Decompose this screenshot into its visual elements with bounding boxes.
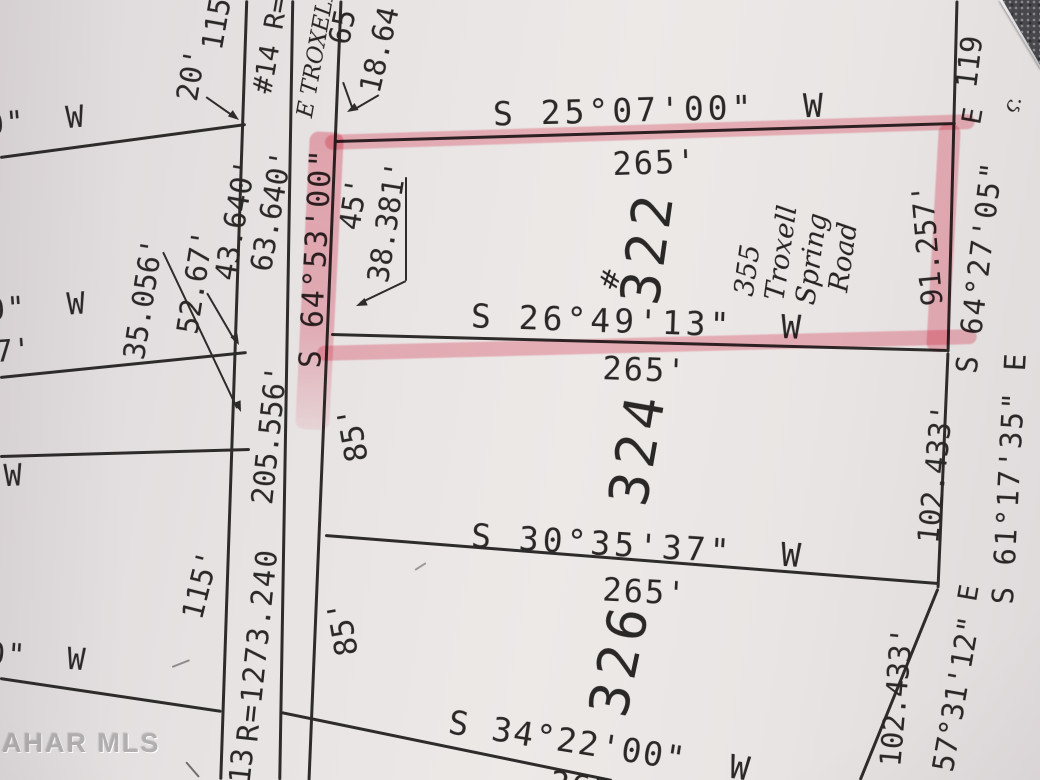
plat-map-photo: S 25°07'00" W265'S 26°49'13" W265'S 30°3… <box>0 0 1040 780</box>
plat-stray-marks-layer <box>0 0 1040 780</box>
mls-watermark: AHAR MLS <box>2 728 161 759</box>
stray-pencil-mark-1 <box>172 659 191 668</box>
stray-pencil-mark-3 <box>414 562 426 571</box>
stray-pencil-mark-2 <box>185 761 200 777</box>
